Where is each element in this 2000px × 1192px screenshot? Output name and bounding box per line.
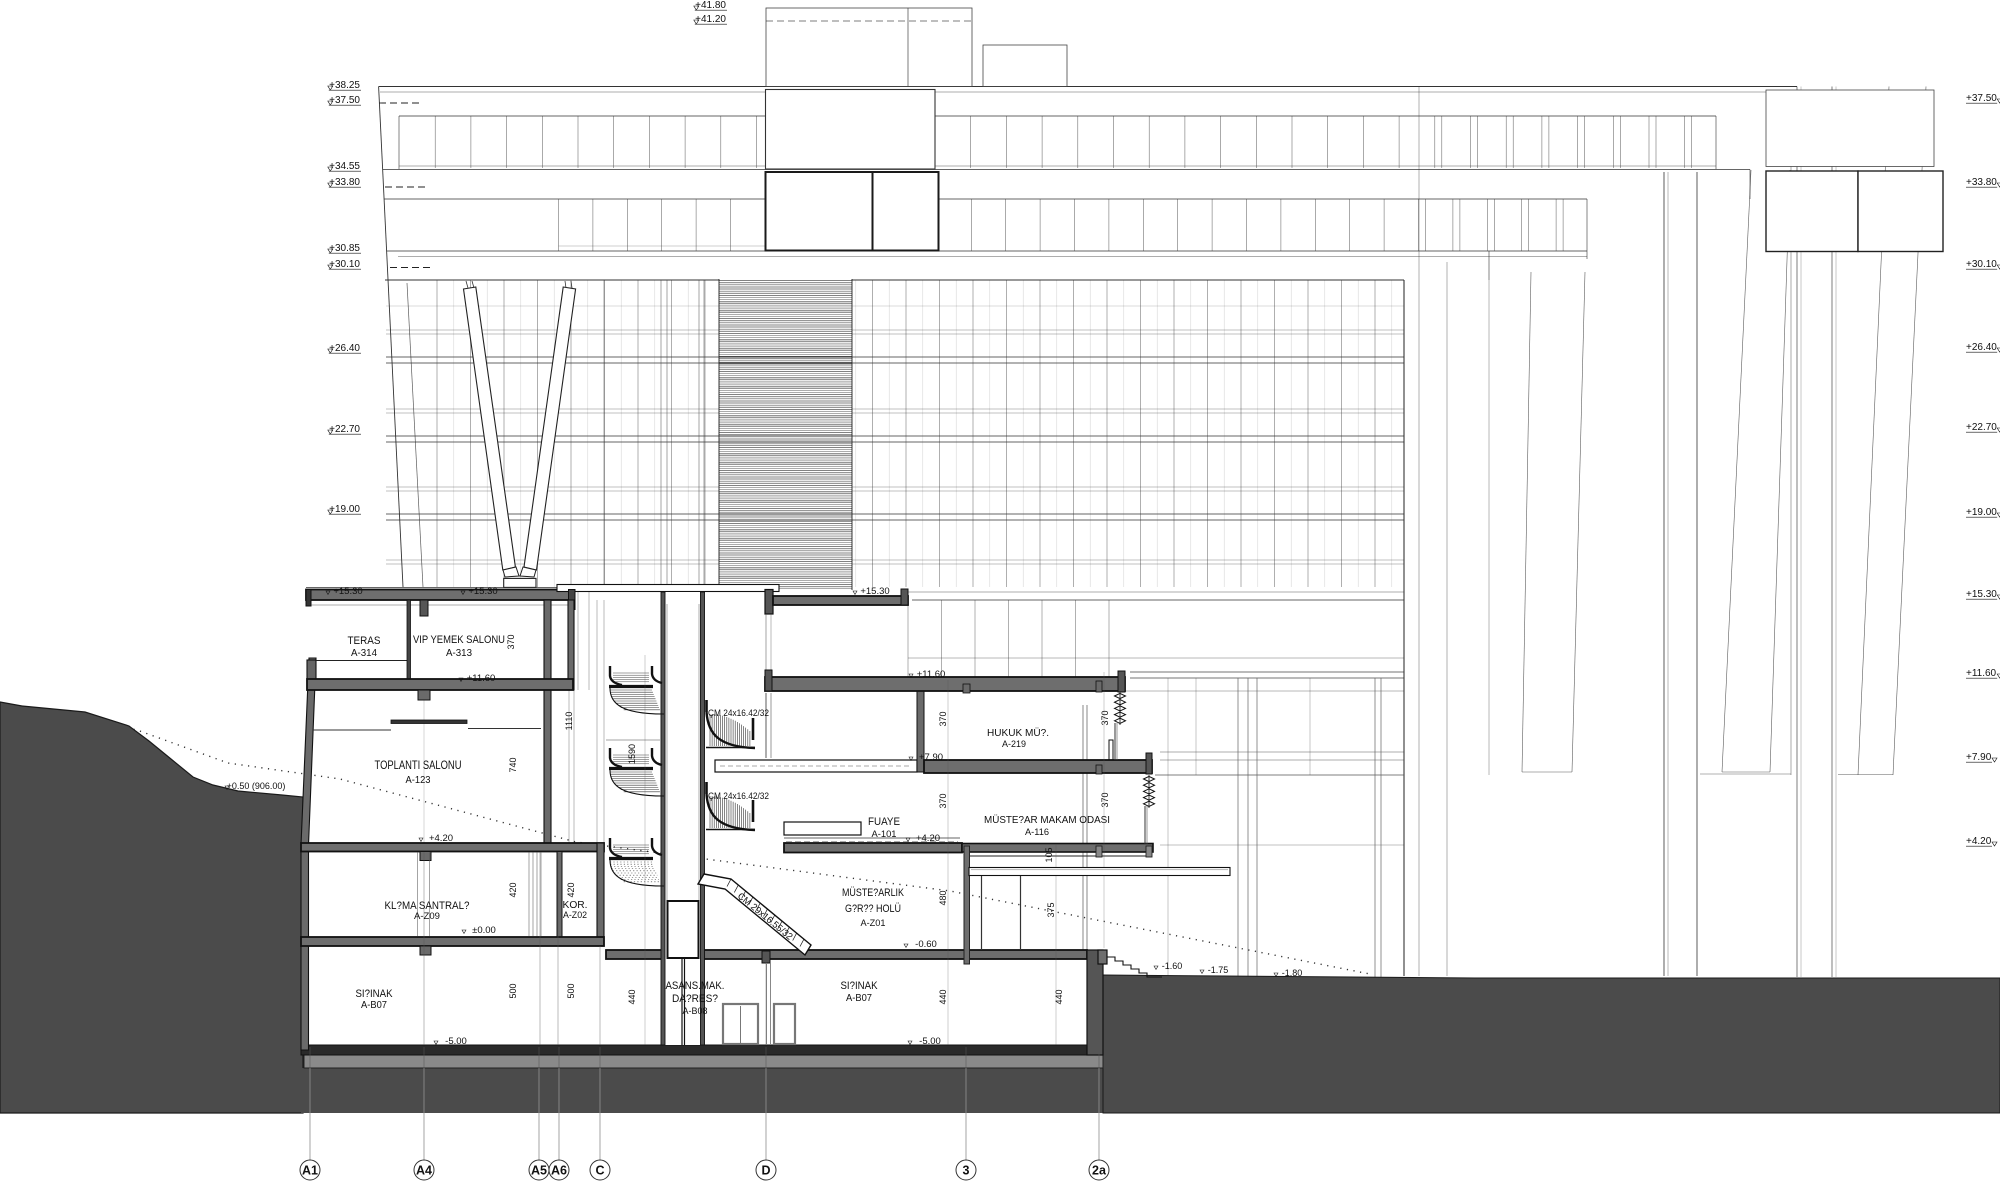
svg-text:+30.85: +30.85 <box>329 243 360 254</box>
svg-text:+26.40: +26.40 <box>1966 342 1997 353</box>
svg-text:A-101: A-101 <box>872 829 897 840</box>
svg-text:A-Z01: A-Z01 <box>861 918 886 929</box>
svg-text:D: D <box>761 1164 770 1178</box>
svg-text:G?R?? HOLÜ: G?R?? HOLÜ <box>845 903 901 915</box>
svg-text:370: 370 <box>1100 792 1110 807</box>
svg-text:375: 375 <box>1046 902 1056 917</box>
svg-text:+11.60: +11.60 <box>467 673 496 684</box>
svg-text:+30.10: +30.10 <box>329 259 360 270</box>
svg-text:+15.30: +15.30 <box>468 586 497 597</box>
svg-text:-0.60: -0.60 <box>915 939 937 950</box>
svg-text:+11.60: +11.60 <box>1966 668 1997 679</box>
svg-text:+4.20: +4.20 <box>1966 836 1992 847</box>
svg-text:ÇM 24x16.42/32: ÇM 24x16.42/32 <box>708 791 769 802</box>
svg-text:A-B07: A-B07 <box>361 1000 387 1011</box>
svg-text:A1: A1 <box>302 1164 318 1178</box>
svg-text:A-B07: A-B07 <box>846 993 872 1004</box>
svg-text:+30.10: +30.10 <box>1966 259 1997 270</box>
svg-text:ÇM 24x16.42/32: ÇM 24x16.42/32 <box>708 708 769 719</box>
svg-text:370: 370 <box>1100 710 1110 725</box>
svg-text:+22.70: +22.70 <box>1966 422 1997 433</box>
svg-text:+7.90: +7.90 <box>919 752 943 763</box>
svg-text:A-314: A-314 <box>351 648 377 659</box>
svg-text:A-219: A-219 <box>1002 739 1026 749</box>
svg-text:-5.00: -5.00 <box>445 1036 467 1047</box>
svg-text:-1.60: -1.60 <box>1162 961 1183 971</box>
svg-text:440: 440 <box>938 989 948 1004</box>
svg-text:A-116: A-116 <box>1025 827 1049 837</box>
svg-text:TERAS: TERAS <box>348 635 381 647</box>
svg-text:HUKUK MÜ?.: HUKUK MÜ?. <box>987 727 1049 739</box>
svg-text:420: 420 <box>508 882 518 897</box>
svg-text:+15.30: +15.30 <box>333 586 362 597</box>
svg-text:C: C <box>595 1164 604 1178</box>
svg-text:-1.75: -1.75 <box>1208 965 1229 975</box>
svg-text:A-313: A-313 <box>446 648 472 659</box>
svg-text:+37.50: +37.50 <box>329 95 360 106</box>
svg-text:+41.80: +41.80 <box>695 0 726 11</box>
svg-text:+33.80: +33.80 <box>329 177 360 188</box>
svg-text:MÜSTE?ARLIK: MÜSTE?ARLIK <box>842 887 905 899</box>
svg-text:+15.30: +15.30 <box>1966 589 1997 600</box>
svg-text:370: 370 <box>938 793 948 808</box>
svg-text:500: 500 <box>566 983 576 998</box>
svg-text:A6: A6 <box>551 1164 567 1178</box>
svg-text:740: 740 <box>508 757 518 772</box>
svg-text:+15.30: +15.30 <box>860 586 889 597</box>
svg-text:A4: A4 <box>416 1164 432 1178</box>
svg-text:+34.55: +34.55 <box>329 161 360 172</box>
svg-text:VIP YEMEK SALONU: VIP YEMEK SALONU <box>413 634 505 646</box>
svg-text:+37.50: +37.50 <box>1966 93 1997 104</box>
svg-text:MÜSTE?AR MAKAM ODASI: MÜSTE?AR MAKAM ODASI <box>984 814 1110 826</box>
svg-text:+33.80: +33.80 <box>1966 177 1997 188</box>
svg-text:500: 500 <box>508 983 518 998</box>
svg-text:A-B08: A-B08 <box>683 1006 708 1017</box>
svg-text:+19.00: +19.00 <box>329 504 360 515</box>
svg-text:A5: A5 <box>531 1164 547 1178</box>
svg-text:+0.50 (906.00): +0.50 (906.00) <box>227 781 286 791</box>
svg-text:2a: 2a <box>1092 1164 1107 1178</box>
svg-text:370: 370 <box>506 634 516 649</box>
svg-text:+4.20: +4.20 <box>429 833 453 844</box>
svg-text:±0.00: ±0.00 <box>472 925 496 936</box>
svg-text:440: 440 <box>627 989 637 1004</box>
svg-text:+38.25: +38.25 <box>329 80 360 91</box>
svg-text:SI?INAK: SI?INAK <box>841 980 879 992</box>
svg-text:370: 370 <box>938 711 948 726</box>
svg-text:+41.20: +41.20 <box>695 14 726 25</box>
svg-text:ASANS.MAK.: ASANS.MAK. <box>666 980 725 992</box>
svg-text:-5.00: -5.00 <box>919 1036 941 1047</box>
svg-text:+7.90: +7.90 <box>1966 752 1992 763</box>
svg-text:+22.70: +22.70 <box>329 424 360 435</box>
svg-text:A-Z02: A-Z02 <box>563 910 587 921</box>
svg-text:+11.60: +11.60 <box>917 669 946 680</box>
svg-text:480: 480 <box>938 890 948 905</box>
svg-text:1110: 1110 <box>564 712 574 731</box>
svg-text:3: 3 <box>963 1164 970 1178</box>
svg-text:A-Z09: A-Z09 <box>414 911 440 922</box>
svg-text:DA?RES?: DA?RES? <box>672 993 718 1005</box>
svg-text:A-123: A-123 <box>406 775 431 786</box>
svg-text:FUAYE: FUAYE <box>868 816 900 828</box>
svg-text:-1.80: -1.80 <box>1282 968 1303 978</box>
svg-text:+4.20: +4.20 <box>916 833 940 844</box>
svg-text:105: 105 <box>1044 847 1054 862</box>
svg-text:1590: 1590 <box>627 744 637 764</box>
svg-text:440: 440 <box>1054 989 1064 1004</box>
svg-text:+26.40: +26.40 <box>329 343 360 354</box>
svg-text:420: 420 <box>566 882 576 897</box>
svg-text:+19.00: +19.00 <box>1966 507 1997 518</box>
svg-text:SI?INAK: SI?INAK <box>356 988 394 1000</box>
svg-text:TOPLANTI SALONU: TOPLANTI SALONU <box>375 760 462 772</box>
